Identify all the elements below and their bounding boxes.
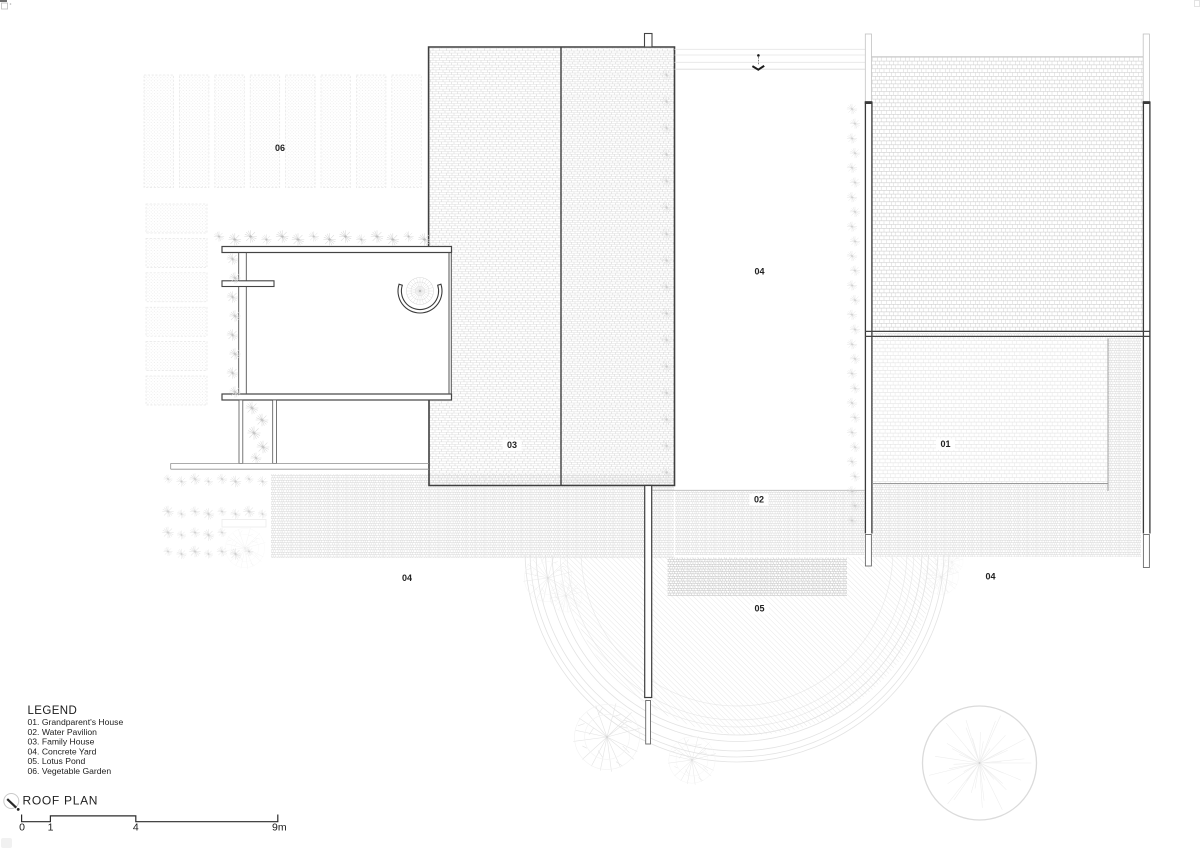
svg-text:03: 03 — [507, 440, 517, 450]
svg-text:02. Water Pavilion: 02. Water Pavilion — [28, 727, 98, 737]
svg-text:4: 4 — [133, 822, 139, 834]
svg-text:01. Grandparent's House: 01. Grandparent's House — [28, 717, 124, 727]
svg-text:LEGEND: LEGEND — [28, 705, 78, 717]
svg-text:04: 04 — [402, 573, 412, 583]
svg-text:05. Lotus Pond: 05. Lotus Pond — [28, 756, 86, 766]
svg-text:03. Family House: 03. Family House — [28, 737, 95, 747]
svg-text:1: 1 — [48, 822, 54, 834]
svg-text:9m: 9m — [272, 822, 287, 834]
svg-text:04: 04 — [754, 267, 764, 277]
svg-text:06: 06 — [275, 143, 285, 153]
svg-text:05: 05 — [754, 604, 764, 614]
svg-text:04. Concrete Yard: 04. Concrete Yard — [28, 746, 97, 756]
svg-text:06. Vegetable Garden: 06. Vegetable Garden — [28, 766, 112, 776]
svg-text:0: 0 — [19, 822, 25, 834]
svg-text:02: 02 — [754, 495, 764, 505]
svg-text:ROOF PLAN: ROOF PLAN — [23, 794, 99, 808]
svg-text:04: 04 — [985, 572, 995, 582]
svg-text:01: 01 — [940, 439, 950, 449]
